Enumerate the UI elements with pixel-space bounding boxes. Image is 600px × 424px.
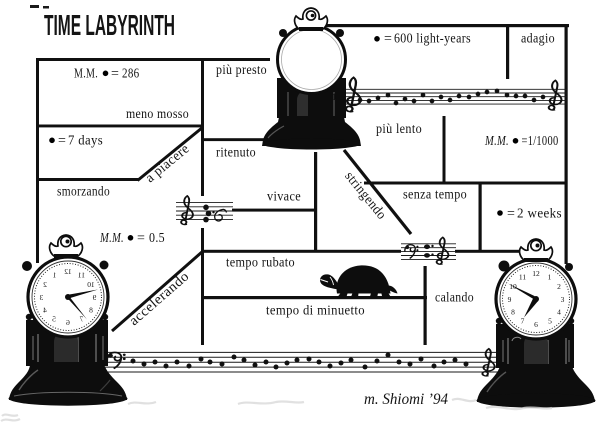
- svg-text:M.M.: M.M.: [484, 134, 509, 149]
- svg-text:calando: calando: [435, 291, 474, 306]
- svg-text:3: 3: [39, 293, 43, 302]
- svg-text:TIME LABYRINTH: TIME LABYRINTH: [44, 10, 175, 42]
- svg-text:286: 286: [122, 67, 140, 82]
- svg-text:11: 11: [519, 273, 526, 282]
- svg-text:smorzando: smorzando: [57, 184, 110, 199]
- svg-text:4: 4: [43, 306, 47, 315]
- svg-text:0.5: 0.5: [149, 231, 165, 246]
- svg-text:=: =: [384, 32, 392, 47]
- svg-text:ritenuto: ritenuto: [216, 146, 256, 161]
- svg-text:7 days: 7 days: [68, 134, 103, 149]
- svg-text:m. Shiomi ’94: m. Shiomi ’94: [364, 391, 448, 408]
- svg-text:tempo rubato: tempo rubato: [226, 256, 295, 271]
- svg-text:più lento: più lento: [376, 122, 422, 137]
- svg-text:6: 6: [66, 318, 70, 327]
- svg-text:1: 1: [548, 273, 552, 282]
- svg-text:600 light-years: 600 light-years: [394, 32, 471, 47]
- svg-text:1: 1: [332, 92, 337, 102]
- svg-text:7: 7: [521, 317, 525, 326]
- svg-text:più presto: più presto: [216, 63, 267, 78]
- svg-text:2: 2: [43, 280, 47, 289]
- svg-text:M.M.: M.M.: [99, 231, 124, 246]
- svg-text:=: =: [507, 207, 515, 222]
- svg-text:M.M.: M.M.: [74, 67, 98, 82]
- svg-text:vivace: vivace: [267, 190, 301, 205]
- svg-text:=: =: [58, 134, 66, 149]
- svg-text:8: 8: [511, 308, 515, 317]
- svg-text:adagio: adagio: [521, 32, 555, 47]
- svg-text:=1/1000: =1/1000: [522, 134, 559, 149]
- svg-text:9: 9: [92, 293, 96, 302]
- svg-text:=: =: [111, 67, 119, 82]
- svg-text:=: =: [137, 231, 145, 246]
- svg-text:8: 8: [89, 306, 93, 315]
- svg-text:5: 5: [548, 317, 552, 326]
- svg-text:3: 3: [561, 295, 565, 304]
- svg-text:senza tempo: senza tempo: [403, 188, 467, 203]
- svg-text:9: 9: [508, 295, 512, 304]
- svg-text:10: 10: [87, 280, 95, 289]
- svg-text:11: 11: [78, 271, 85, 280]
- svg-text:meno mosso: meno mosso: [126, 107, 189, 122]
- svg-text:7: 7: [79, 315, 83, 324]
- svg-text:6: 6: [534, 320, 538, 329]
- svg-text:4: 4: [557, 308, 561, 317]
- svg-text:2 weeks: 2 weeks: [517, 207, 562, 222]
- svg-text:12: 12: [532, 269, 540, 278]
- svg-text:5: 5: [52, 315, 56, 324]
- svg-text:2: 2: [557, 282, 561, 291]
- svg-text:1: 1: [52, 271, 56, 280]
- svg-text:tempo di minuetto: tempo di minuetto: [266, 304, 365, 319]
- svg-text:12: 12: [64, 267, 72, 276]
